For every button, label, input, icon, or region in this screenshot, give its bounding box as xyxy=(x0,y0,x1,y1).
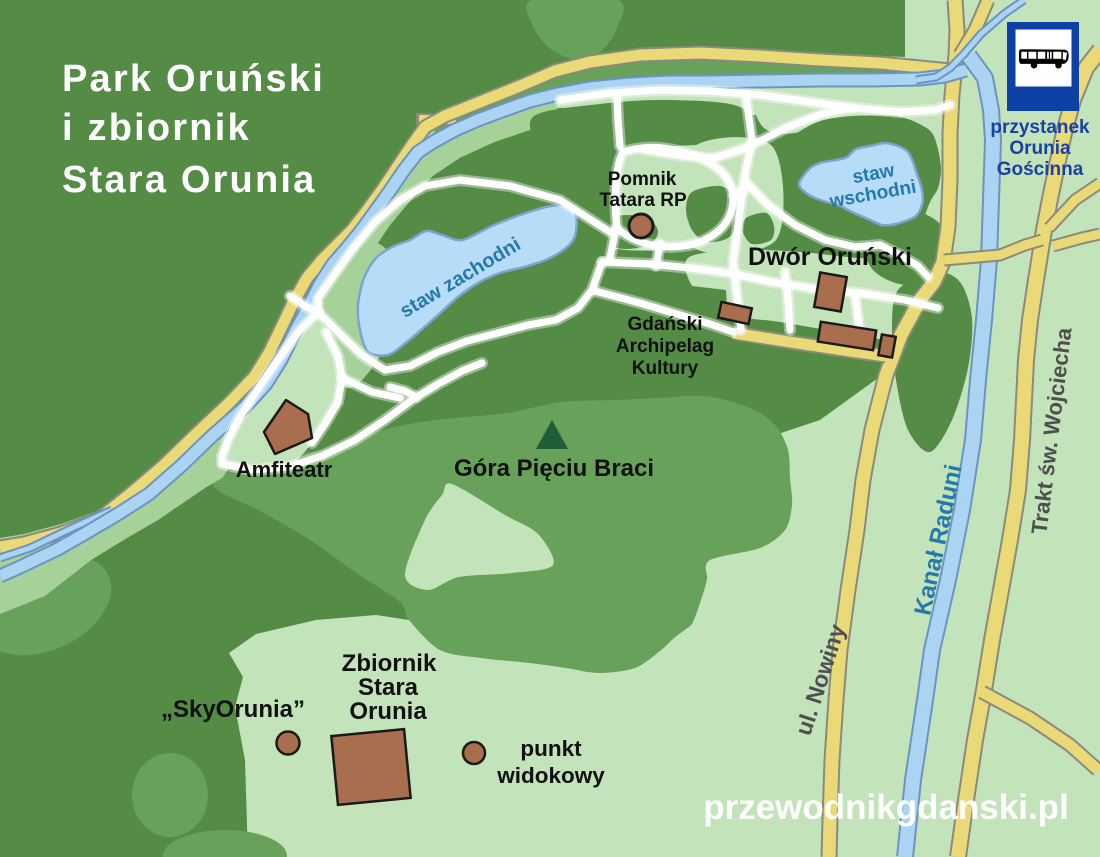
svg-text:Kultury: Kultury xyxy=(632,358,699,379)
svg-text:Gościnna: Gościnna xyxy=(997,159,1084,180)
svg-text:Orunia: Orunia xyxy=(1009,138,1071,159)
svg-text:Park Oruński: Park Oruński xyxy=(62,58,325,100)
svg-text:Zbiornik: Zbiornik xyxy=(342,650,437,677)
svg-text:przewodnikgdanski.pl: przewodnikgdanski.pl xyxy=(703,788,1069,827)
svg-text:Dwór Oruński: Dwór Oruński xyxy=(748,243,912,271)
svg-text:„SkyOrunia”: „SkyOrunia” xyxy=(161,696,305,723)
svg-text:widokowy: widokowy xyxy=(496,763,605,788)
svg-text:Orunia: Orunia xyxy=(349,698,427,725)
svg-text:Góra Pięciu Braci: Góra Pięciu Braci xyxy=(454,455,654,482)
svg-text:Tatara RP: Tatara RP xyxy=(599,190,687,211)
svg-text:Stara Orunia: Stara Orunia xyxy=(62,159,316,201)
svg-text:Archipelag: Archipelag xyxy=(616,336,714,357)
svg-text:przystanek: przystanek xyxy=(990,117,1090,138)
svg-text:punkt: punkt xyxy=(520,736,582,761)
svg-text:Amfiteatr: Amfiteatr xyxy=(236,457,333,482)
svg-text:i zbiornik: i zbiornik xyxy=(62,107,251,149)
svg-text:Stara: Stara xyxy=(358,674,419,701)
svg-text:Pomnik: Pomnik xyxy=(608,169,677,190)
svg-text:Gdański: Gdański xyxy=(628,314,703,335)
